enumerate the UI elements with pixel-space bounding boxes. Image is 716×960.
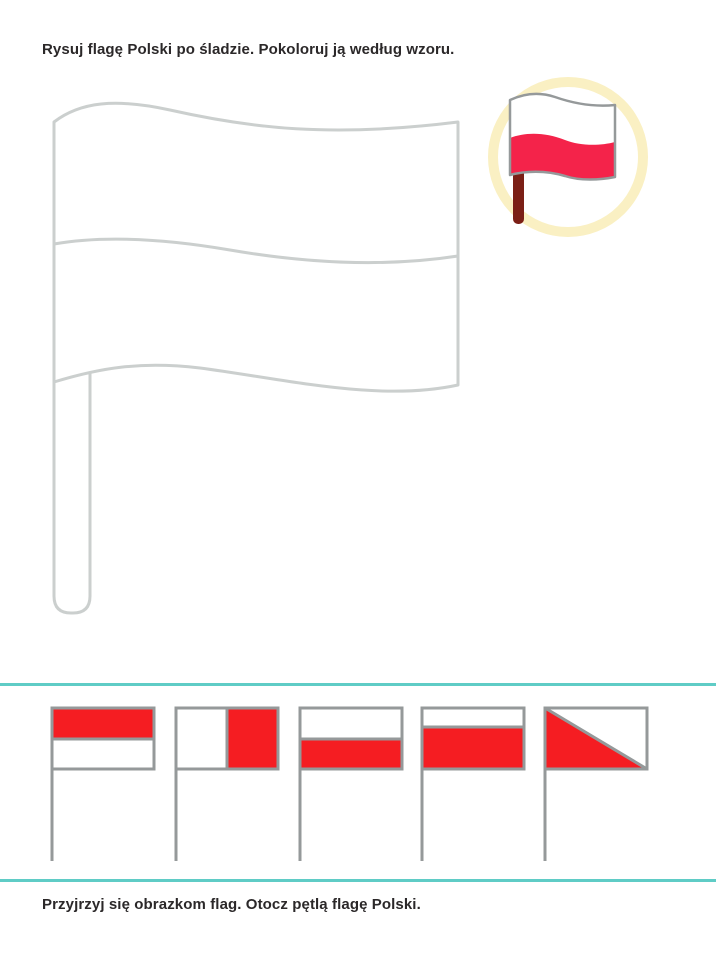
flag-option-4[interactable] [422,708,524,861]
flag-option-3-poland[interactable] [300,708,402,861]
flag-option-1[interactable] [52,708,154,861]
flag-option-2-red-area [227,708,278,769]
flag-option-2[interactable] [176,708,278,861]
instruction-bottom: Przyjrzyj się obrazkom flag. Otocz pętlą… [42,896,421,913]
flag-option-4-red-area [422,727,524,769]
flag-option-1-red-area [52,708,154,739]
trace-flag-pole[interactable] [54,372,90,613]
flag-option-3-red-area [300,739,402,769]
trace-flag[interactable] [54,103,458,613]
worksheet-graphics [0,0,716,960]
worksheet-page: Rysuj flagę Polski po śladzie. Pokoloruj… [0,0,716,960]
trace-flag-body[interactable] [54,103,458,391]
flag-option-5[interactable] [545,708,647,861]
example-badge [493,82,643,232]
